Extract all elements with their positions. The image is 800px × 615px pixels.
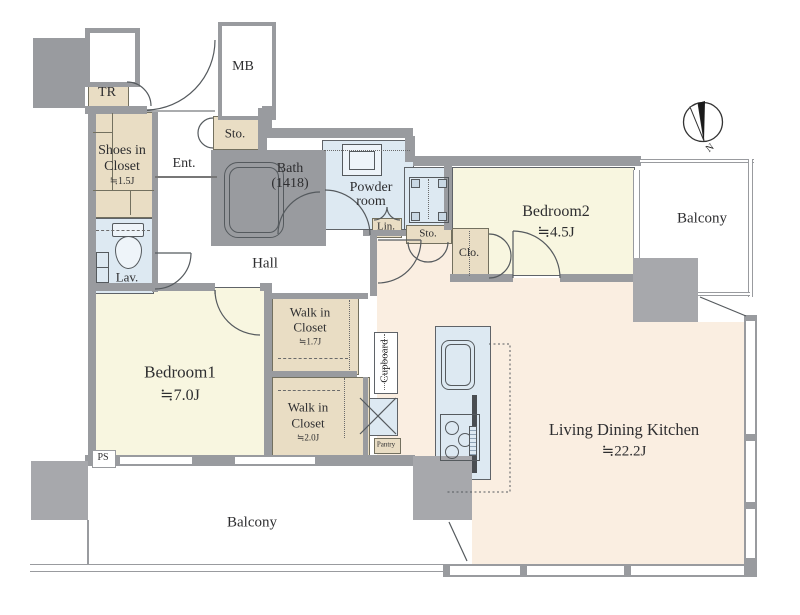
- ldk-label: Living Dining Kitchen: [549, 422, 699, 439]
- storage-fold-door: [198, 133, 213, 148]
- balcony-side-label: Balcony: [677, 212, 727, 227]
- linen-label: Lin.: [377, 222, 395, 233]
- tr-door-arc: [127, 82, 151, 106]
- lav-door-arc: [155, 253, 191, 289]
- doors-and-symbols-layer: N: [0, 0, 800, 615]
- linen-fold-door: [387, 207, 400, 220]
- bedroom2-label: Bedroom2: [522, 204, 590, 220]
- bath-size-label: (1418): [271, 177, 308, 191]
- cupboard-label: Cupboard: [380, 339, 391, 382]
- pantry-label: Pantry: [377, 442, 395, 449]
- storage-fold-door: [198, 118, 213, 133]
- shoes-closet-label-2: Closet: [104, 160, 140, 174]
- wic1-label-2: Closet: [293, 321, 326, 334]
- kitchen-dotted-outline: [445, 344, 510, 492]
- wic2-label-2: Closet: [291, 417, 324, 430]
- bedroom1-size-label: ≒7.0J: [160, 388, 200, 404]
- ps-label: PS: [97, 453, 108, 463]
- closet-label: Clo.: [459, 246, 479, 258]
- mb-label: MB: [232, 60, 254, 74]
- bedroom2-size-label: ≒4.5J: [537, 226, 574, 241]
- wic2-size-label: ≒2.0J: [297, 434, 319, 443]
- balcony-partition: [700, 297, 746, 316]
- balcony-main-label: Balcony: [227, 516, 277, 531]
- ldk-door-arc: [378, 240, 421, 283]
- floorplan: N Shoes in Closet ≒1.5J Ent. TR MB Sto. …: [0, 0, 800, 615]
- tr-label: TR: [98, 86, 116, 100]
- powder-room-label-1: Powder: [350, 181, 393, 195]
- shoes-closet-label-1: Shoes in: [98, 144, 146, 158]
- storage-hall-label: Sto.: [419, 229, 436, 240]
- bedroom1-door-arc: [215, 290, 260, 335]
- ent-label: Ent.: [173, 157, 196, 171]
- closet-fold-door: [489, 256, 511, 278]
- wic2-label-1: Walk in: [288, 401, 328, 414]
- compass: N: [684, 101, 723, 155]
- hall-label: Hall: [252, 257, 278, 272]
- wic1-size-label: ≒1.7J: [299, 338, 321, 347]
- lav-label: Lav.: [116, 271, 139, 284]
- powder-room-label-2: room: [356, 195, 386, 209]
- storage-entrance-label: Sto.: [225, 127, 246, 140]
- closet-fold-door: [489, 234, 511, 256]
- bath-label: Bath: [277, 162, 303, 176]
- ldk-size-label: ≒22.2J: [602, 445, 647, 460]
- entry-door-arc: [147, 40, 215, 110]
- hall-storage-fold-door: [428, 242, 448, 262]
- wic1-label-1: Walk in: [290, 306, 330, 319]
- balcony-partition: [449, 522, 467, 561]
- bath-door-arc: [278, 192, 320, 234]
- bedroom1-label: Bedroom1: [144, 364, 216, 381]
- hall-storage-fold-door: [408, 242, 428, 262]
- compass-n-label: N: [704, 142, 716, 155]
- shoes-closet-size: ≒1.5J: [110, 177, 135, 187]
